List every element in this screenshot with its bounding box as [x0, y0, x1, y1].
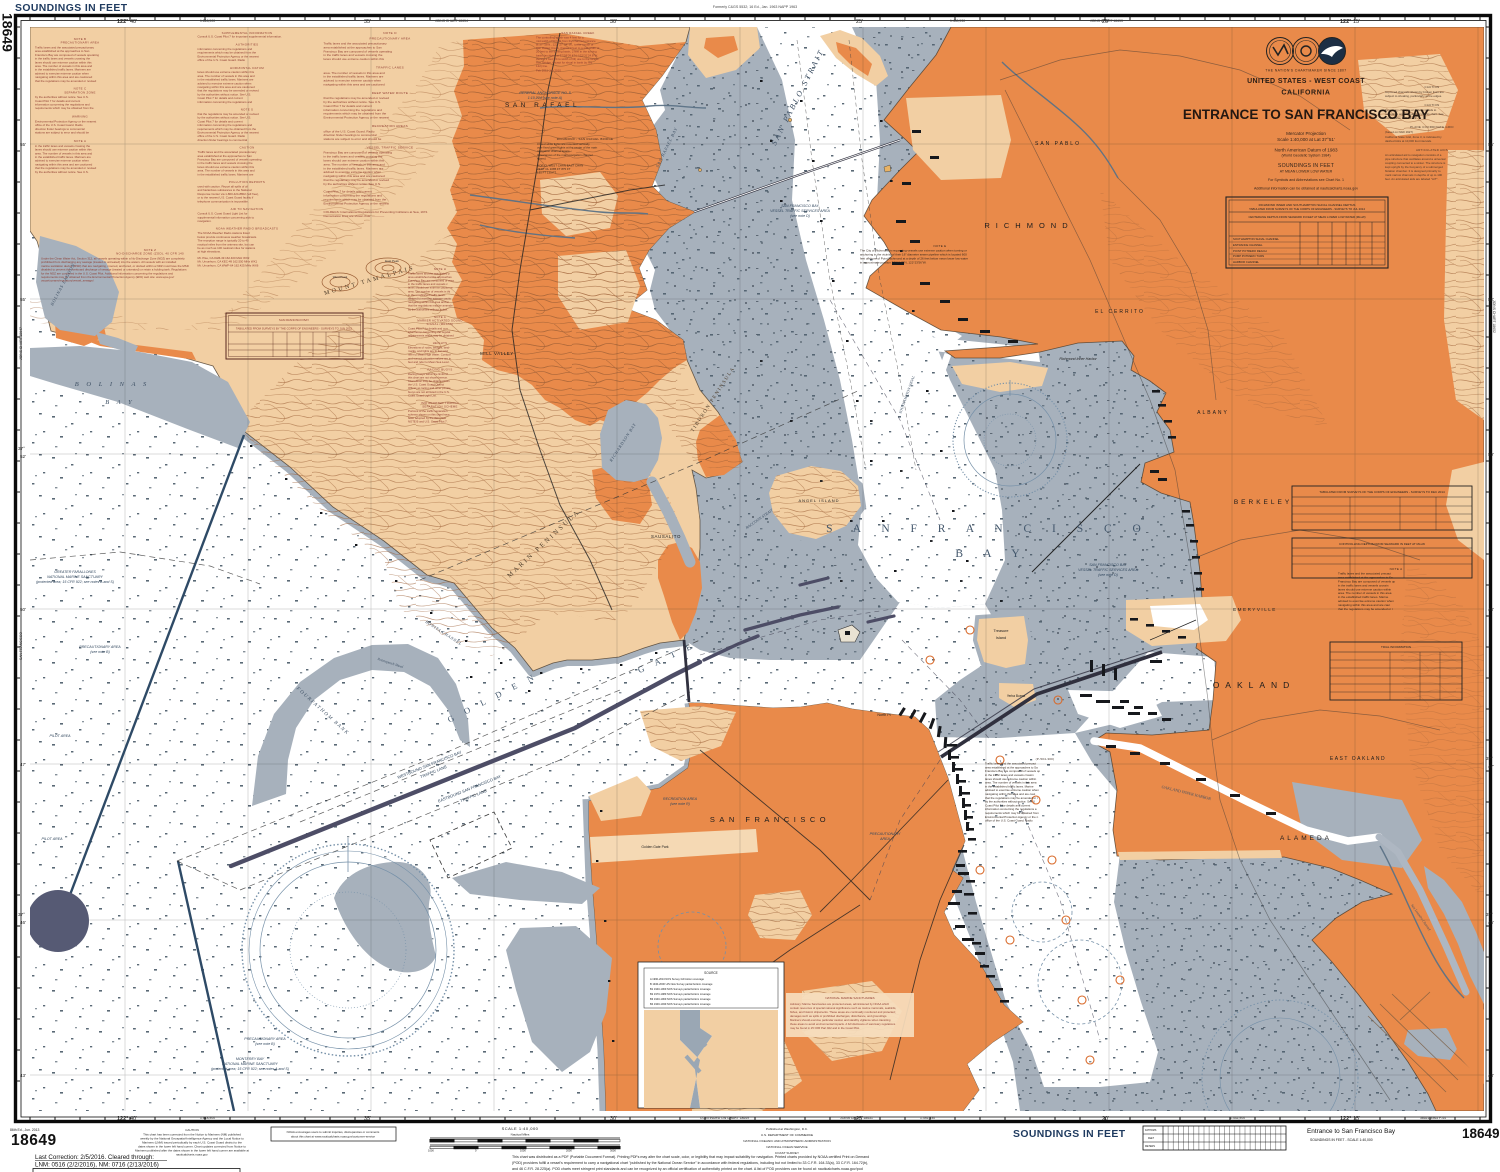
svg-text:nauticalcharts.noaa.gov.: nauticalcharts.noaa.gov.: [176, 1153, 208, 1157]
svg-text:Entrance to San Francisco Bay: Entrance to San Francisco Bay: [1307, 1128, 1396, 1135]
svg-text:(P-504-300): (P-504-300): [1036, 757, 1055, 761]
svg-text:at high elevations.: at high elevations.: [198, 250, 221, 254]
svg-text:by the authorities without not: by the authorities without notice. See U…: [35, 170, 89, 174]
svg-text:45': 45': [1488, 920, 1494, 925]
svg-text:CALIFORNIA: CALIFORNIA: [1281, 90, 1330, 97]
svg-text:NOTE S: NOTE S: [241, 108, 254, 112]
svg-text:GREATER FARALLONES: GREATER FARALLONES: [54, 570, 96, 574]
svg-text:ALBANY: ALBANY: [1197, 410, 1229, 416]
svg-text:47': 47': [1488, 764, 1494, 769]
svg-text:FATHOMS: FATHOMS: [1145, 1129, 1157, 1132]
svg-text:SEPARATION ZONE: SEPARATION ZONE: [64, 90, 96, 94]
svg-text:NATIONAL MARINE SANCTUARY: NATIONAL MARINE SANCTUARY: [47, 575, 103, 579]
svg-text:122°: 122°: [117, 19, 128, 25]
svg-text:(protected area; 15 CFR 922; s: (protected area; 15 CFR 922; see notes A…: [211, 1067, 289, 1071]
svg-text:NO-DISCHARGE ZONE (ZOD), 40 CF: NO-DISCHARGE ZONE (ZOD), 40 CFR 140: [116, 252, 184, 256]
svg-text:1000: 1000: [520, 1149, 526, 1153]
svg-text:EL CERRITO: EL CERRITO: [1095, 309, 1145, 315]
svg-text:B1 1940-1969 NOS Surveys: B1 1940-1969 NOS Surveys partial bottom …: [650, 987, 711, 991]
svg-text:1:492,930: 1:492,930: [920, 1116, 935, 1120]
svg-text:Mercator Projection: Mercator Projection: [1286, 131, 1326, 136]
svg-text:SAUSALITO: SAUSALITO: [651, 534, 681, 539]
svg-text:SOUNDINGS IN FEET: SOUNDINGS IN FEET: [15, 3, 128, 14]
svg-text:Yerba Buena: Yerba Buena: [1007, 694, 1026, 698]
svg-text:1:10,224 (see note A): 1:10,224 (see note A): [528, 96, 562, 100]
svg-text:B O L I N A S: B O L I N A S: [75, 381, 149, 388]
svg-text:may be found in 15 CFR Part 92: may be found in 15 CFR Part 922 and in t…: [790, 1026, 860, 1030]
svg-text:feet. An articulated aids are: feet. An articulated aids are labeled "A…: [1385, 177, 1439, 181]
svg-text:UNITED STATES - WEST COAST: UNITED STATES - WEST COAST: [1247, 78, 1365, 85]
svg-text:JOINS CHART 18653: JOINS CHART 18653: [1090, 19, 1123, 23]
svg-text:TRAFFIC LANES: TRAFFIC LANES: [376, 66, 404, 70]
svg-text:40': 40': [130, 19, 137, 25]
svg-text:Richmond Inner Harbor: Richmond Inner Harbor: [1059, 357, 1097, 361]
svg-text:HORIZONTAL DATUM: HORIZONTAL DATUM: [230, 66, 264, 70]
svg-text:BERKELEY: BERKELEY: [1234, 499, 1292, 506]
svg-text:37°: 37°: [18, 912, 25, 917]
svg-text:HARBOR CHANNEL: HARBOR CHANNEL: [1233, 260, 1260, 264]
svg-text:spans): spans): [537, 157, 546, 161]
svg-text:18649: 18649: [1462, 1126, 1500, 1141]
svg-text:1:818,900: 1:818,900: [200, 19, 215, 23]
svg-text:NOAA encourages users to submi: NOAA encourages users to submit inquirie…: [287, 1130, 380, 1134]
svg-text:15': 15': [1353, 1116, 1360, 1122]
svg-text:SCALE 1:40,000: SCALE 1:40,000: [502, 1126, 539, 1131]
svg-text:NOTE A: NOTE A: [1390, 567, 1403, 571]
svg-text:Consult U.S. Coast Pilot 7 for: Consult U.S. Coast Pilot 7 for important…: [198, 35, 283, 39]
svg-text:ENTRANCE CHANNEL: ENTRANCE CHANNEL: [1233, 243, 1263, 247]
svg-text:JOINS CHART 18652: JOINS CHART 18652: [1492, 300, 1496, 333]
svg-text:37°: 37°: [1486, 912, 1493, 917]
svg-text:requirements which may be obta: requirements which may be obtained from …: [35, 106, 94, 110]
svg-text:East Peak: East Peak: [385, 259, 399, 263]
svg-text:135 FT 135 FT: 135 FT 135 FT: [537, 171, 556, 175]
svg-text:North American Datum of 1983: North American Datum of 1983: [1274, 148, 1338, 153]
svg-text:navigation.: navigation.: [198, 219, 212, 223]
svg-text:1:432,900: 1:432,900: [1230, 1116, 1245, 1120]
svg-text:Demarcation lines are shown th: Demarcation lines are shown thus: ————: [324, 214, 386, 218]
svg-text:Published at Washington, D.C.: Published at Washington, D.C.: [766, 1127, 808, 1131]
svg-text:SAN FRANCISCO BAY: SAN FRANCISCO BAY: [781, 204, 819, 208]
svg-text:North Pt: North Pt: [877, 713, 890, 717]
svg-text:in approximate position 37°54': in approximate position 37°54'47"N, 122°…: [860, 260, 927, 264]
svg-text:SOUNDINGS IN FEET: SOUNDINGS IN FEET: [1278, 163, 1335, 169]
svg-text:direction finder bearings to c: direction finder bearings to commercial: [198, 138, 248, 142]
svg-text:55': 55': [20, 297, 26, 302]
svg-text:122°: 122°: [1340, 19, 1351, 25]
svg-text:1000: 1000: [428, 1149, 434, 1153]
svg-text:NOAA WEATHER RADIO BROADCASTS: NOAA WEATHER RADIO BROADCASTS: [216, 227, 278, 231]
svg-text:Mt. Umunhum, CA WWF-64 162.42: Mt. Umunhum, CA WWF-64 162.425 MHz WX6: [198, 263, 259, 267]
svg-text:West Peak: West Peak: [333, 275, 348, 279]
svg-text:POLLUTION REPORTS: POLLUTION REPORTS: [229, 180, 265, 184]
svg-text:LNM: 0516 (2/2/2016), NM: 0716: LNM: 0516 (2/2/2016), NM: 0716 (2/13/201…: [35, 1162, 159, 1169]
svg-text:(see note D): (see note D): [790, 214, 810, 218]
svg-text:SAN FRANCISCO BAY: SAN FRANCISCO BAY: [1089, 563, 1127, 567]
svg-text:A 1990-2013 NOS Survey: A 1990-2013 NOS Survey full bottom cover…: [650, 977, 704, 981]
svg-text:RECREATION AREA: RECREATION AREA: [663, 797, 698, 801]
svg-text:and 46 C.F.R. 28.225(a). POD c: and 46 C.F.R. 28.225(a). POD charts meet…: [512, 1167, 863, 1171]
svg-text:MONTEREY BAY: MONTEREY BAY: [236, 1057, 265, 1061]
svg-text:37°: 37°: [18, 446, 25, 451]
svg-text:U.S. DEPARTMENT OF COMMERCE: U.S. DEPARTMENT OF COMMERCE: [761, 1133, 813, 1137]
svg-text:TABULATED FROM SURVEYS BY THE: TABULATED FROM SURVEYS BY THE CORPS OF E…: [236, 327, 353, 331]
svg-text:Additional information can be: Additional information can be obtained a…: [1254, 187, 1358, 191]
svg-text:(see note R): (see note R): [670, 802, 690, 806]
svg-text:NATIONAL MARINE SANCTUARY: NATIONAL MARINE SANCTUARY: [222, 1062, 278, 1066]
svg-text:(protected area; 15 CFR 922; s: (protected area; 15 CFR 922; see notes A…: [36, 580, 114, 584]
svg-text:122°: 122°: [1340, 1116, 1351, 1122]
svg-text:telephone communication is imp: telephone communication is impossible.: [198, 199, 249, 203]
svg-text:SAN FRANCISCO BAY: SAN FRANCISCO BAY: [279, 318, 309, 322]
svg-text:Golden Gate Park: Golden Gate Park: [641, 845, 668, 849]
svg-text:1:818,900: 1:818,900: [200, 1116, 215, 1120]
svg-text:55': 55': [1488, 142, 1494, 147]
svg-text:30': 30': [610, 19, 617, 25]
svg-text:PUMP POTRERO TURN: PUMP POTRERO TURN: [1233, 254, 1264, 258]
svg-text:CAUTION: CAUTION: [185, 1128, 199, 1132]
svg-text:SOUTHAMPTON SHOAL CHANNEL: SOUTHAMPTON SHOAL CHANNEL: [1233, 237, 1279, 241]
svg-text:TABULATED FROM SURVEYS OF THE: TABULATED FROM SURVEYS OF THE CORPS OF E…: [1249, 207, 1365, 211]
svg-text:30': 30': [610, 1116, 617, 1122]
svg-text:B A Y: B A Y: [105, 399, 135, 406]
svg-text:JOINS CHART 18647: JOINS CHART 18647: [19, 327, 23, 360]
svg-text:NATIONAL MARINE SANCTUARIES: NATIONAL MARINE SANCTUARIES: [825, 996, 874, 1000]
svg-text:ANGEL ISLAND: ANGEL ISLAND: [799, 498, 840, 503]
svg-text:SAN PABLO: SAN PABLO: [1035, 141, 1081, 147]
svg-text:SOUNDINGS IN FEET: SOUNDINGS IN FEET: [1013, 1129, 1126, 1140]
svg-text:SOUNDINGS IN FEET - SCALE 1:40: SOUNDINGS IN FEET - SCALE 1:40,000: [1310, 1138, 1373, 1142]
svg-text:NOTE A: NOTE A: [74, 139, 86, 143]
svg-text:Island: Island: [996, 636, 1006, 640]
svg-text:subject to shoaling, particula: subject to shoaling, particularly at the…: [1385, 94, 1442, 98]
svg-text:Coast Guard Light List.: Coast Guard Light List.: [408, 393, 437, 397]
svg-text:that the regulations may be am: that the regulations may be amended or r…: [35, 79, 97, 83]
svg-text:TIDAL INFORMATION: TIDAL INFORMATION: [1381, 645, 1411, 649]
svg-text:48': 48': [1488, 607, 1494, 612]
svg-text:information concerning the reg: information concerning the regulations a…: [198, 100, 253, 104]
svg-text:(POD) providers fulfill a vess: (POD) providers fulfill a vessel's requi…: [512, 1161, 868, 1165]
svg-text:B4 1900-1939 NOS Surveys: B4 1900-1939 NOS Surveys partial bottom …: [650, 1002, 711, 1006]
svg-text:CENTERLINE DEPTHS FROM SEAWARD: CENTERLINE DEPTHS FROM SEAWARD IN FEET A…: [1248, 215, 1365, 219]
svg-text:35': 35': [364, 19, 371, 25]
svg-text:stations are subject to error: stations are subject to error and should…: [324, 137, 382, 141]
svg-text:(see note B): (see note B): [255, 1042, 275, 1046]
svg-text:ALAMEDA: ALAMEDA: [1280, 835, 1332, 842]
svg-text:PRECAUTIONARY: PRECAUTIONARY: [870, 832, 901, 836]
svg-text:B 1940-2000 U/S New Surv: B 1940-2000 U/S New Survey partial botto…: [650, 982, 713, 986]
svg-text:feet and refer to Mean Sea Lev: feet and refer to Mean Sea Level.: [408, 360, 450, 364]
svg-text:by the authorities without not: by the authorities without notice. See U…: [324, 182, 382, 186]
svg-text:MILL VALLEY: MILL VALLEY: [480, 351, 514, 356]
svg-text:PLANE COORDINATE GRID: PLANE COORDINATE GRID: [1410, 125, 1454, 129]
svg-text:Environmental Protection Agenc: Environmental Protection Agency or the n…: [324, 201, 390, 205]
svg-text:18649: 18649: [11, 1132, 57, 1149]
svg-text:SAN FRANCISCO: SAN FRANCISCO: [19, 632, 23, 660]
svg-text:stations are subject to error: stations are subject to error and should…: [35, 131, 89, 135]
svg-text:This chart was distributed as: This chart was distributed as a PDF (Por…: [512, 1155, 869, 1159]
svg-text:JOINS CHART 18651: JOINS CHART 18651: [840, 1116, 873, 1120]
svg-text:38621-3965 F-44: 38621-3965 F-44: [1420, 1116, 1446, 1120]
svg-text:S A N F R A N C I S C O: S A N F R A N C I S C O: [826, 523, 1150, 535]
svg-text:B3 1940-1969 NOS Surveys: B3 1940-1969 NOS Surveys partial bottom …: [650, 997, 711, 1001]
svg-text:35': 35': [364, 1116, 371, 1122]
svg-text:VESSEL TRAFFIC SERVICES AREA: VESSEL TRAFFIC SERVICES AREA: [1078, 568, 1138, 572]
svg-text:ENTRANCE TO SAN FRANCISCO BAY: ENTRANCE TO SAN FRANCISCO BAY: [1183, 107, 1429, 122]
svg-text:requirements which may be obta: requirements which may be obtained: [408, 334, 454, 338]
svg-text:RECREATION AREAS: RECREATION AREAS: [372, 124, 408, 128]
svg-text:Feb 2011-Jan 2010: Feb 2011-Jan 2010: [536, 68, 561, 72]
svg-text:WARNING: WARNING: [72, 115, 88, 119]
svg-text:AREA: AREA: [879, 837, 890, 841]
svg-text:RICHMOND: RICHMOND: [984, 221, 1073, 230]
svg-text:15': 15': [1353, 19, 1360, 25]
svg-text:RACING BUOYS: RACING BUOYS: [427, 367, 452, 371]
svg-text:SAN RAFAEL: SAN RAFAEL: [505, 102, 580, 109]
svg-text:(World Geodetic System 1984): (World Geodetic System 1984): [1281, 154, 1330, 158]
svg-text:43': 43': [1488, 1073, 1494, 1078]
svg-text:VESSEL TRAFFIC SERVICES AREA: VESSEL TRAFFIC SERVICES AREA: [770, 209, 830, 213]
svg-text:122°: 122°: [117, 1116, 128, 1122]
svg-text:AT MEAN LOWER LOW WATER: AT MEAN LOWER LOW WATER: [1280, 170, 1333, 174]
svg-text:37°: 37°: [1486, 756, 1493, 761]
svg-text:EAST OAKLAND: EAST OAKLAND: [1330, 756, 1386, 762]
svg-text:3000: 3000: [610, 1149, 616, 1153]
svg-text:AUTHORITIES: AUTHORITIES: [236, 43, 259, 47]
svg-text:DEEP WATER ROUTE: DEEP WATER ROUTE: [372, 91, 409, 95]
svg-text:(see note B): (see note B): [90, 650, 110, 654]
svg-text:lanes should use extreme cauti: lanes should use extreme caution within …: [324, 57, 385, 61]
svg-text:43': 43': [20, 1073, 26, 1078]
svg-text:VESSEL TRAFFIC SERVICE: VESSEL TRAFFIC SERVICE: [367, 146, 414, 150]
svg-text:50': 50': [20, 607, 26, 612]
svg-text:POINT POTRERO REACH: POINT POTRERO REACH: [1233, 249, 1267, 253]
svg-text:NOTE E: NOTE E: [934, 244, 947, 248]
svg-text:NATIONAL OCEAN SERVICE: NATIONAL OCEAN SERVICE: [766, 1145, 807, 1149]
svg-text:dashed ticks at 10,000 foot in: dashed ticks at 10,000 foot intervals.: [1385, 139, 1432, 143]
svg-text:47': 47': [20, 762, 26, 767]
svg-text:that the regulations may be am: that the regulations may be amended or r: [1338, 607, 1393, 611]
svg-text:PILOT AREA: PILOT AREA: [49, 734, 71, 738]
svg-text:(see note D): (see note D): [1098, 573, 1118, 577]
svg-text:B A Y: B A Y: [955, 548, 1028, 560]
svg-text:Last Correction: 2/5/2016. Cl: Last Correction: 2/5/2016. Cleared throu…: [35, 1154, 154, 1161]
svg-text:METERS: METERS: [1145, 1145, 1155, 1148]
svg-text:CONTROLLING DEPTHS FROM SEAWAR: CONTROLLING DEPTHS FROM SEAWARD IN FEET …: [1339, 542, 1425, 546]
svg-text:(based on NAD 1927): (based on NAD 1927): [1385, 130, 1413, 134]
svg-text:40': 40': [130, 1116, 137, 1122]
svg-text:PRECAUTIONARY AREA: PRECAUTIONARY AREA: [369, 37, 411, 41]
svg-text:about this chart at www.nautic: about this chart at www.nauticalcharts.n…: [291, 1135, 375, 1139]
svg-text:CONTINUED ON CHART 18649: CONTINUED ON CHART 18649: [700, 1116, 749, 1120]
svg-text:NOTE B and U.S. Coast Pilot 7.: NOTE B and U.S. Coast Pilot 7.: [408, 420, 448, 424]
svg-text:TABULATED FROM SURVEYS OF THE: TABULATED FROM SURVEYS OF THE CORPS OF E…: [1319, 490, 1445, 494]
svg-text:SOURCE: SOURCE: [704, 971, 718, 975]
svg-text:OAKLAND: OAKLAND: [1213, 680, 1296, 690]
svg-text:20': 20': [1102, 1116, 1109, 1122]
svg-text:Scale 1:40,000 at Lat 37°51': Scale 1:40,000 at Lat 37°51': [1277, 137, 1335, 142]
svg-text:CAUTION: CAUTION: [239, 146, 254, 150]
svg-text:AID TO NAVIGATION: AID TO NAVIGATION: [231, 207, 264, 211]
svg-text:SAN FRANCISCO: SAN FRANCISCO: [710, 815, 830, 824]
svg-text:For Symbols and Abbreviations: For Symbols and Abbreviations see Chart …: [1268, 178, 1344, 182]
svg-text:1:440,930: 1:440,930: [950, 19, 965, 23]
svg-text:NATIONAL OCEANIC AND ATMOSPHER: NATIONAL OCEANIC AND ATMOSPHERIC ADMINIS…: [743, 1139, 830, 1143]
svg-text:in the established traffic lan: in the established traffic lanes. Marine…: [198, 172, 254, 176]
svg-text:Environmental Protection Agenc: Environmental Protection Agency or the n…: [324, 116, 390, 120]
svg-text:55': 55': [20, 142, 26, 147]
svg-text:EMERYVILLE: EMERYVILLE: [1233, 607, 1277, 612]
svg-text:PILOT AREA: PILOT AREA: [41, 837, 63, 841]
svg-text:52': 52': [20, 454, 26, 459]
svg-text:Nautical Miles: Nautical Miles: [511, 1133, 530, 1137]
svg-text:18649: 18649: [0, 13, 16, 52]
svg-text:PRECAUTIONARY AREA: PRECAUTIONARY AREA: [244, 1037, 286, 1041]
svg-text:Formerly C&GS 5532; 16 Ed., J: Formerly C&GS 5532; 16 Ed., Jan. 1963 NA…: [713, 5, 797, 9]
svg-text:navigating within this area an: navigating within this area and are caut…: [324, 83, 386, 87]
svg-text:46': 46': [20, 920, 26, 925]
svg-text:FEET: FEET: [1148, 1137, 1155, 1140]
svg-text:2000: 2000: [566, 1149, 572, 1153]
svg-text:JOINS CHART 18654: JOINS CHART 18654: [435, 19, 468, 23]
svg-text:THE NATION'S CHARTMAKER SINCE: THE NATION'S CHARTMAKER SINCE 1807: [1265, 69, 1346, 73]
svg-text:PRECAUTIONARY AREA: PRECAUTIONARY AREA: [61, 41, 100, 45]
svg-text:ARTICULATED AIDS: ARTICULATED AIDS: [1416, 148, 1448, 152]
svg-text:office of the U.S. Coast Guard: office of the U.S. Coast Guard. Radio: [198, 58, 246, 62]
svg-text:CAUTION: CAUTION: [1424, 85, 1439, 89]
svg-text:office of the U.S. Coast Guard: office of the U.S. Coast Guard. Radio: [985, 819, 1033, 823]
svg-text:B2 1970-1989 NOS Surveys: B2 1970-1989 NOS Surveys partial bottom …: [650, 992, 711, 996]
svg-text:GENERAL ANCHORAGE NO. 5: GENERAL ANCHORAGE NO. 5: [519, 91, 571, 95]
svg-text:50': 50': [1488, 452, 1494, 457]
svg-text:NOTE D: NOTE D: [383, 31, 397, 35]
svg-text:Treasure: Treasure: [993, 629, 1008, 633]
svg-text:RICHMOND - SAN RAFAEL BRIDGE: RICHMOND - SAN RAFAEL BRIDGE: [557, 137, 613, 141]
svg-text:by the authorities without not: by the authorities without notice.: [408, 307, 448, 311]
svg-text:25': 25': [856, 19, 863, 25]
svg-text:PRECAUTIONARY AREA: PRECAUTIONARY AREA: [79, 645, 121, 649]
